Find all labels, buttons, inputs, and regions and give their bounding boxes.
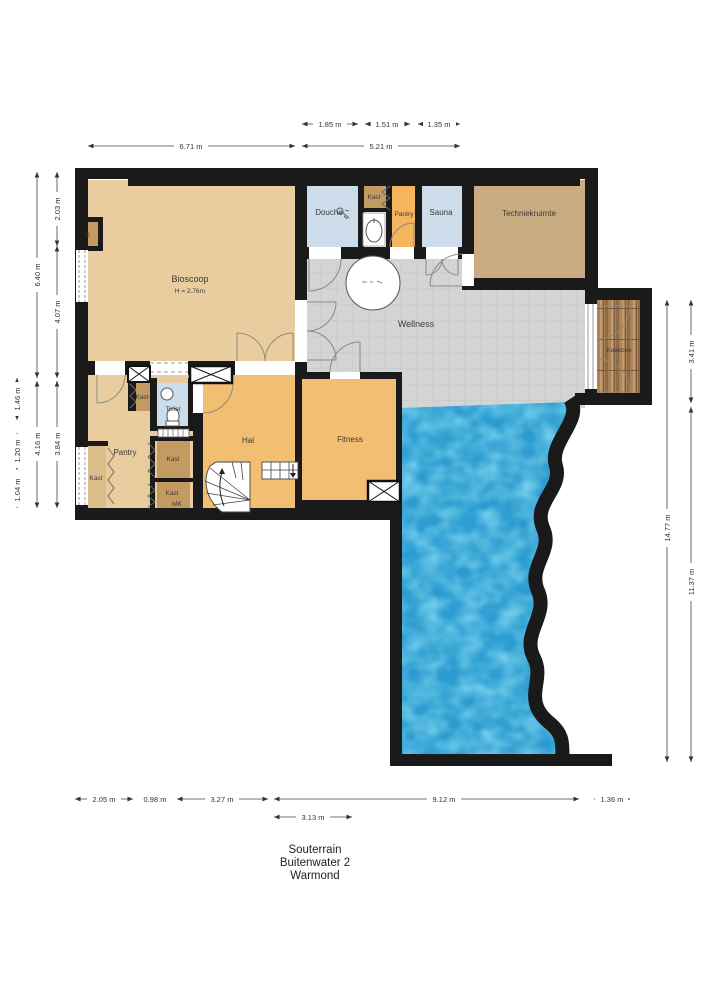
dim-left-total-1: 6.40 m <box>32 172 42 378</box>
plan-address: Buitenwater 2 <box>280 857 350 869</box>
svg-text:1.46 m: 1.46 m <box>13 388 22 411</box>
svg-text:3.41 m: 3.41 m <box>687 341 696 364</box>
svg-text:14.77 m: 14.77 m <box>663 514 672 541</box>
dim-bottom-3: 3.27 m <box>177 794 268 804</box>
dim-left-seg-1: 2.03 m <box>52 172 62 246</box>
dim-right-seg-1: 3.41 m <box>686 300 696 403</box>
dim-top-total-1: 6.71 m <box>88 141 295 151</box>
window-left-upper <box>76 250 88 302</box>
svg-text:1.36 m: 1.36 m <box>601 795 624 804</box>
label-bioscoop: Bioscoop <box>171 274 208 284</box>
dim-bottom-5: 1.36 m <box>594 794 630 804</box>
dim-left-seg-3: 3.84 m <box>52 381 62 508</box>
label-kast-bottom: Kast <box>165 490 178 497</box>
svg-text:5.21 m: 5.21 m <box>370 142 393 151</box>
shaft-box-small <box>128 366 150 382</box>
dim-top-total-2: 5.21 m <box>302 141 460 151</box>
svg-text:3.84 m: 3.84 m <box>53 433 62 456</box>
dim-left-outer-2: 1.20 m <box>12 433 22 470</box>
svg-text:4.16 m: 4.16 m <box>33 433 42 456</box>
dim-right-total: 14.77 m <box>662 300 672 762</box>
svg-text:0.98 m: 0.98 m <box>144 795 167 804</box>
plan-floor-label: Souterrain <box>288 844 341 856</box>
shaft-box-large <box>190 366 232 383</box>
label-mk: MK <box>172 501 182 508</box>
label-bioscoop-height: H = 2.76m <box>175 288 205 295</box>
label-kast-top: Kast <box>367 194 380 201</box>
floorplan-image: Bioscoop H = 2.76m K Douche Kast Pantry … <box>0 0 707 1000</box>
label-techniekruimte: Techniekruimte <box>502 209 556 218</box>
svg-text:6.71 m: 6.71 m <box>180 142 203 151</box>
label-douche: Douche <box>315 208 343 217</box>
svg-text:1.20 m: 1.20 m <box>13 440 22 463</box>
window-left-lower <box>76 447 88 505</box>
washbasin <box>363 213 385 246</box>
floorplan-page: Bioscoop H = 2.76m K Douche Kast Pantry … <box>0 0 707 1000</box>
plan-title: Souterrain Buitenwater 2 Warmond <box>280 844 350 882</box>
shaft-box-fitness <box>368 481 400 502</box>
vent-toilet <box>158 429 189 437</box>
plan-city: Warmond <box>290 870 339 882</box>
label-fitness: Fitness <box>337 435 363 444</box>
svg-text:6.40 m: 6.40 m <box>33 264 42 287</box>
window-koekoek <box>585 300 597 393</box>
label-koekoek: Koekoek <box>606 347 632 354</box>
dim-left-outer-3: 1.04 m <box>12 473 22 508</box>
dim-left-total-2: 4.16 m <box>32 381 42 508</box>
round-shower-tub <box>346 256 400 310</box>
dim-left-seg-2: 4.07 m <box>52 246 62 378</box>
svg-text:9.12 m: 9.12 m <box>433 795 456 804</box>
label-pantry: Pantry <box>113 448 136 457</box>
dim-bottom-4: 9.12 m <box>274 794 579 804</box>
svg-text:2.05 m: 2.05 m <box>93 795 116 804</box>
label-k: K <box>86 232 91 239</box>
dim-top-seg-1: 1.85 m <box>302 119 358 129</box>
svg-text:11.37 m: 11.37 m <box>687 569 696 596</box>
dim-bottom-2: 0.98 m <box>139 794 172 804</box>
svg-text:4.07 m: 4.07 m <box>53 301 62 324</box>
label-kast-mid: Kast <box>166 456 179 463</box>
svg-text:3.13 m: 3.13 m <box>302 813 325 822</box>
svg-text:1.51 m: 1.51 m <box>376 120 399 129</box>
svg-text:3.27 m: 3.27 m <box>211 795 234 804</box>
label-sauna: Sauna <box>429 208 453 217</box>
dim-bottom-secondary: 3.13 m <box>274 812 352 822</box>
svg-text:2.03 m: 2.03 m <box>53 198 62 221</box>
label-pantry-top: Pantry <box>395 211 415 218</box>
label-hal: Hal <box>242 436 254 445</box>
dim-top-seg-3: 1.35 m <box>418 119 460 129</box>
label-kast-left: Kast <box>89 475 102 482</box>
dim-top-seg-2: 1.51 m <box>365 119 410 129</box>
opening-bioscoop-dashed <box>150 361 188 375</box>
label-kast-hal: Kast <box>135 394 148 401</box>
room-bioscoop <box>88 180 295 363</box>
dim-right-seg-2: 11.37 m <box>686 407 696 762</box>
svg-text:1.85 m: 1.85 m <box>319 120 342 129</box>
dim-bottom-1: 2.05 m <box>75 794 133 804</box>
svg-text:1.35 m: 1.35 m <box>428 120 451 129</box>
svg-text:1.04 m: 1.04 m <box>13 479 22 502</box>
dim-left-outer-1: 1.46 m <box>12 378 22 420</box>
swimming-pool <box>395 395 610 760</box>
label-wellness: Wellness <box>398 319 435 329</box>
label-toilet: Toilet <box>165 406 180 413</box>
room-techniekruimte <box>474 180 585 278</box>
